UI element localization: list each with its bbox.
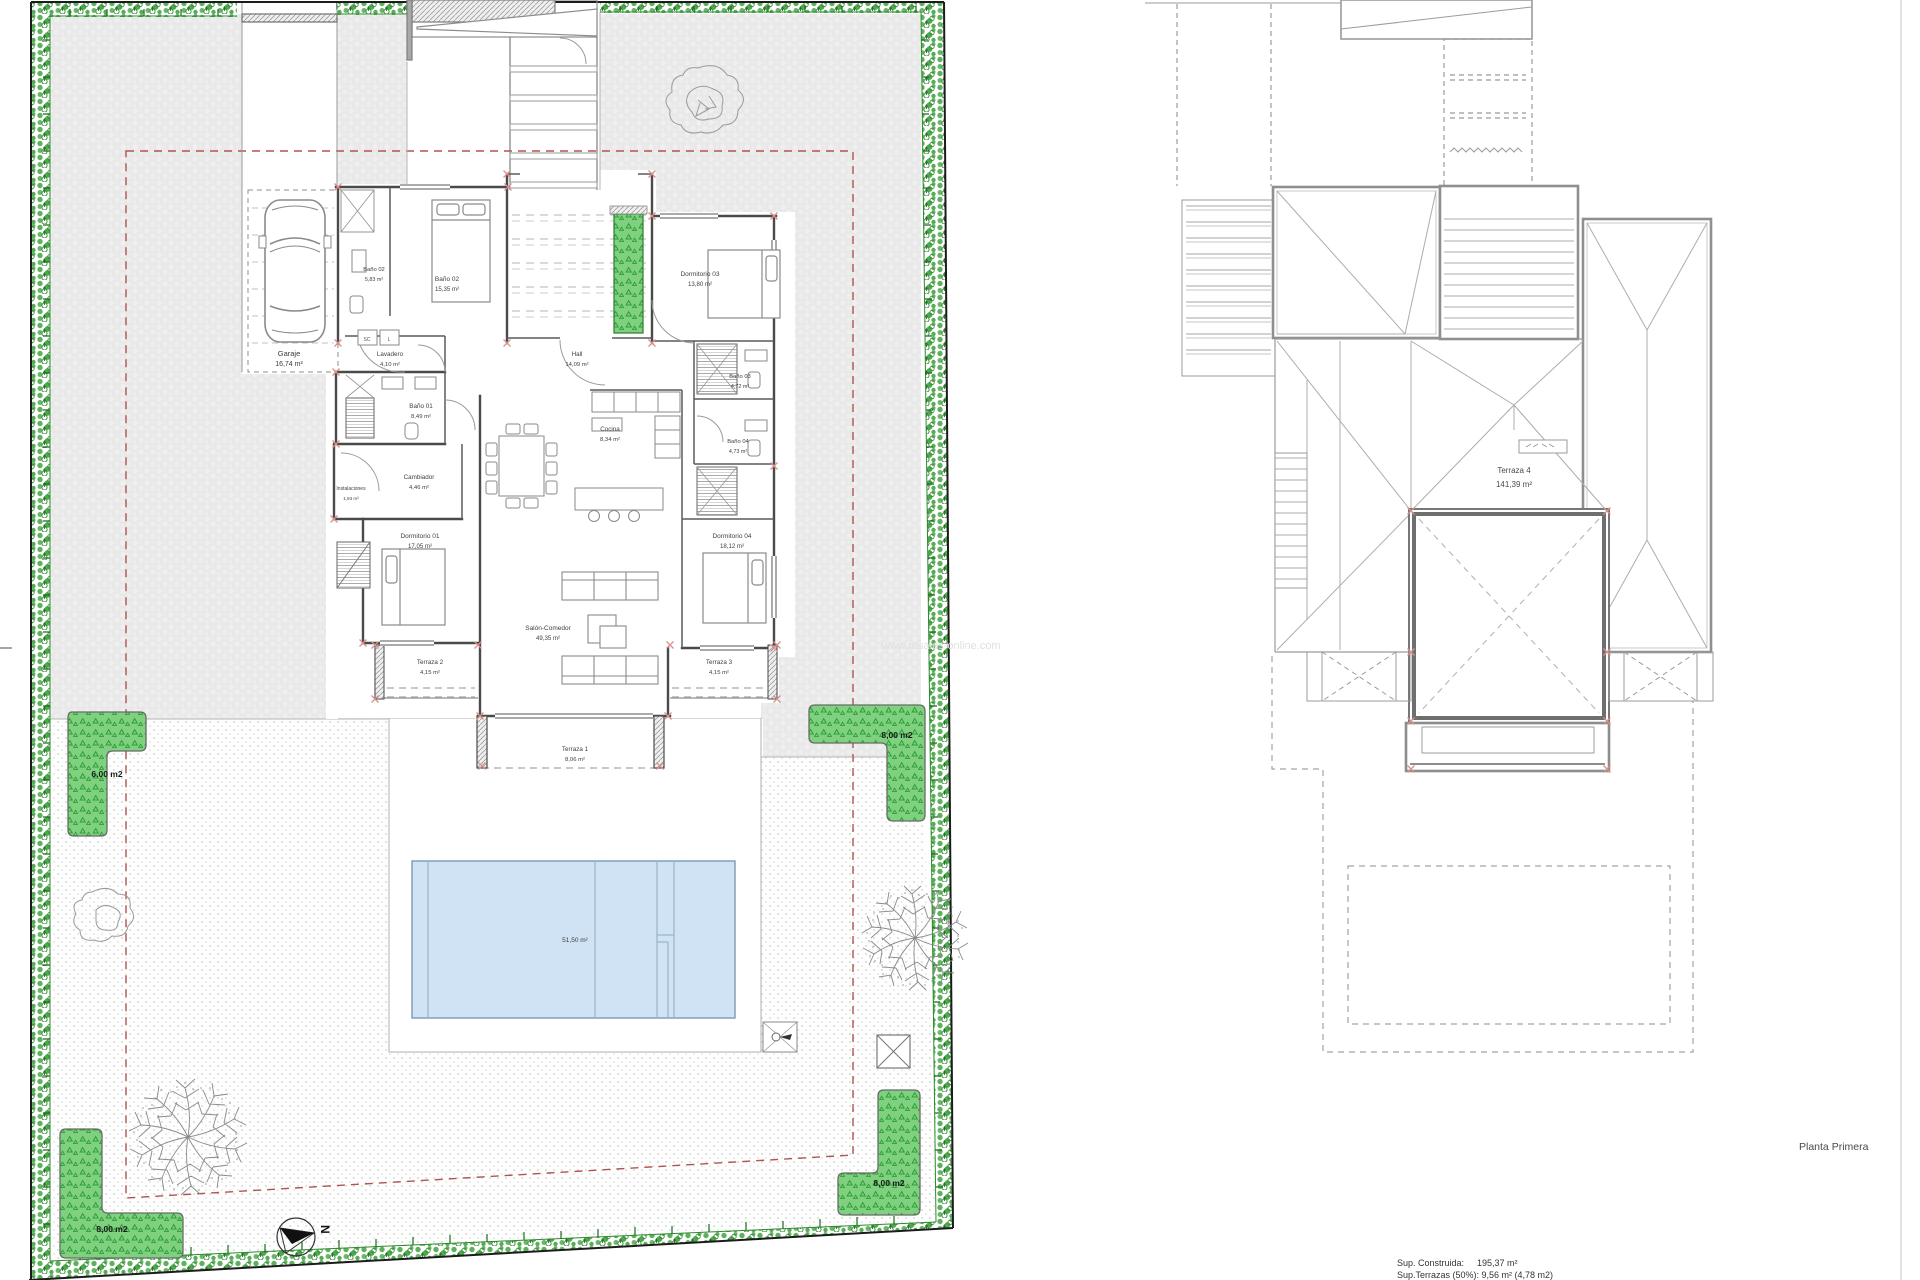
svg-text:4,15 m²: 4,15 m²: [709, 670, 729, 676]
svg-text:Instalaciones: Instalaciones: [336, 486, 366, 492]
svg-text:Terraza 4: Terraza 4: [1497, 466, 1531, 475]
svg-text:Sup.Terrazas (50%): 9,56 m² (4: Sup.Terrazas (50%): 9,56 m² (4,78 m2): [1397, 1270, 1553, 1280]
svg-text:8,00 m2: 8,00 m2: [881, 730, 912, 740]
svg-text:Baño 02: Baño 02: [435, 276, 460, 283]
svg-text:13,80 m²: 13,80 m²: [688, 281, 712, 288]
svg-text:1,93 m²: 1,93 m²: [343, 496, 359, 501]
svg-text:8,06 m²: 8,06 m²: [565, 757, 585, 763]
svg-text:51,50 m²: 51,50 m²: [562, 937, 588, 944]
svg-text:8,00 m2: 8,00 m2: [873, 1178, 904, 1188]
svg-text:Terraza 3: Terraza 3: [706, 659, 733, 666]
svg-text:Baño 04: Baño 04: [727, 439, 749, 445]
svg-text:Terraza 1: Terraza 1: [562, 746, 589, 753]
svg-text:Cambiador: Cambiador: [404, 474, 435, 481]
svg-text:Baño 01: Baño 01: [409, 403, 433, 410]
svg-text:Garaje: Garaje: [278, 349, 301, 358]
svg-text:17,05 m²: 17,05 m²: [408, 543, 432, 550]
svg-text:4,73 m²: 4,73 m²: [729, 449, 747, 455]
svg-text:195,37 m²: 195,37 m²: [1477, 1258, 1518, 1268]
svg-text:4,10 m²: 4,10 m²: [380, 362, 400, 368]
svg-text:8,00 m2: 8,00 m2: [96, 1224, 127, 1234]
svg-text:Cocina: Cocina: [600, 426, 620, 433]
svg-text:Sup. Construida:: Sup. Construida:: [1397, 1258, 1464, 1268]
svg-text:141,39 m²: 141,39 m²: [1496, 480, 1532, 489]
svg-text:Planta Primera: Planta Primera: [1799, 1141, 1869, 1153]
svg-text:49,35 m²: 49,35 m²: [536, 635, 560, 642]
svg-text:14,09 m²: 14,09 m²: [565, 362, 588, 368]
svg-text:5,83 m²: 5,83 m²: [365, 277, 383, 283]
svg-text:N: N: [318, 1225, 332, 1234]
svg-text:Salón-Comedor: Salón-Comedor: [525, 625, 571, 632]
svg-text:Dormitorio 03: Dormitorio 03: [680, 271, 719, 278]
svg-text:4,72 m²: 4,72 m²: [731, 384, 749, 390]
svg-text:www.resales-online.com: www.resales-online.com: [881, 640, 1001, 652]
svg-text:4,46 m²: 4,46 m²: [409, 485, 429, 491]
svg-text:Baño 03: Baño 03: [729, 374, 751, 380]
svg-text:Dormitorio 01: Dormitorio 01: [400, 533, 439, 540]
svg-text:6.00 m2: 6.00 m2: [91, 769, 122, 779]
svg-text:18,12 m²: 18,12 m²: [720, 543, 744, 550]
svg-text:Terraza 2: Terraza 2: [417, 659, 444, 666]
svg-text:Dormitorio 04: Dormitorio 04: [712, 533, 751, 540]
svg-text:Lavadero: Lavadero: [377, 351, 404, 358]
svg-text:Baño 02: Baño 02: [363, 267, 385, 273]
svg-text:Hall: Hall: [572, 351, 583, 358]
svg-text:8,49 m²: 8,49 m²: [411, 414, 431, 420]
svg-text:8,34 m²: 8,34 m²: [600, 437, 620, 443]
svg-text:15,35 m²: 15,35 m²: [435, 286, 459, 293]
svg-text:4,15 m²: 4,15 m²: [420, 670, 440, 676]
svg-text:16,74 m²: 16,74 m²: [275, 361, 303, 368]
svg-text:SC: SC: [364, 337, 371, 343]
svg-text:L: L: [388, 337, 391, 343]
